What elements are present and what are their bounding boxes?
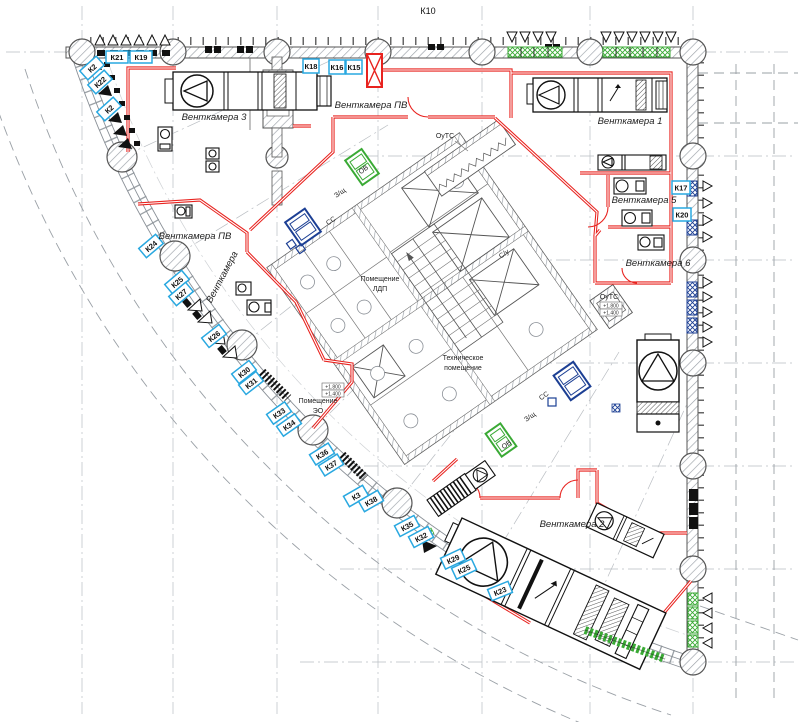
svg-text:+1.400: +1.400 [325, 391, 341, 397]
k-label-18: К18 [303, 59, 319, 73]
red-shaft [367, 54, 382, 87]
svg-text:+1.400: +1.400 [603, 310, 619, 316]
unit-striped [427, 460, 496, 517]
svg-text:К19: К19 [135, 53, 148, 62]
svg-text:К17: К17 [675, 184, 688, 193]
ahu-ventkamera-1 [527, 78, 667, 112]
svg-text:К16: К16 [331, 63, 344, 72]
svg-text:К18: К18 [305, 62, 318, 71]
label-zsh-2: З/щ [523, 411, 537, 424]
svg-text:К20: К20 [676, 211, 689, 220]
svg-text:К15: К15 [348, 63, 361, 72]
floor-plan-drawing: К21 К19 К2 К22 К2 К18 К16 К15 К17 К20 К2… [0, 0, 800, 722]
label-ventkamera-pv-top: Венткамера ПВ [335, 100, 408, 111]
label-eo-2: ЭО [313, 408, 324, 415]
label-ventkamera-pv-left: Венткамера ПВ [159, 231, 232, 242]
ahu-ventkamera-3 [165, 72, 331, 110]
svg-text:К21: К21 [111, 53, 124, 62]
k-label-16: К16 [329, 60, 345, 74]
k-label-15: К15 [346, 60, 362, 74]
label-ventkamera-1: Венткамера 1 [598, 116, 663, 127]
label-outs-1: ОуТС [436, 133, 454, 140]
label-ventkamera-diag: Венткамера [204, 250, 240, 305]
k-label-21: К21 [106, 51, 128, 63]
k-label-17: К17 [672, 181, 690, 194]
label-zsh-1: З/щ [333, 187, 347, 200]
ahu-right-riser [637, 334, 679, 432]
elevation-mark-eo: +1.800 +1.400 [322, 383, 344, 397]
k-label-20: К20 [673, 208, 691, 221]
label-pom-ldp-1: Помещение [361, 276, 400, 283]
ahu-ventkamera-2-small [586, 503, 664, 558]
riser-label-k10: К10 [420, 6, 435, 16]
svg-text:+1.800: +1.800 [325, 384, 341, 390]
svg-text:+1.800: +1.800 [603, 303, 619, 309]
floor-plan-page: К21 К19 К2 К22 К2 К18 К16 К15 К17 К20 К2… [0, 0, 800, 722]
label-ventkamera-3: Венткамера 3 [182, 112, 248, 123]
label-eo-1: Помещение [299, 398, 338, 405]
svg-text:ОуТС: ОуТС [600, 294, 618, 301]
label-ventkamera-2: Венткамера 2 [540, 519, 606, 530]
label-tech-1: Техническое [443, 355, 484, 362]
label-tech-2: помещение [444, 365, 482, 372]
label-ventkamera-5: Венткамера 5 [612, 195, 678, 206]
k-label-19: К19 [130, 51, 152, 63]
label-pom-ldp-2: ЛДП [373, 286, 387, 293]
label-ventkamera-6: Венткамера 6 [626, 258, 692, 269]
